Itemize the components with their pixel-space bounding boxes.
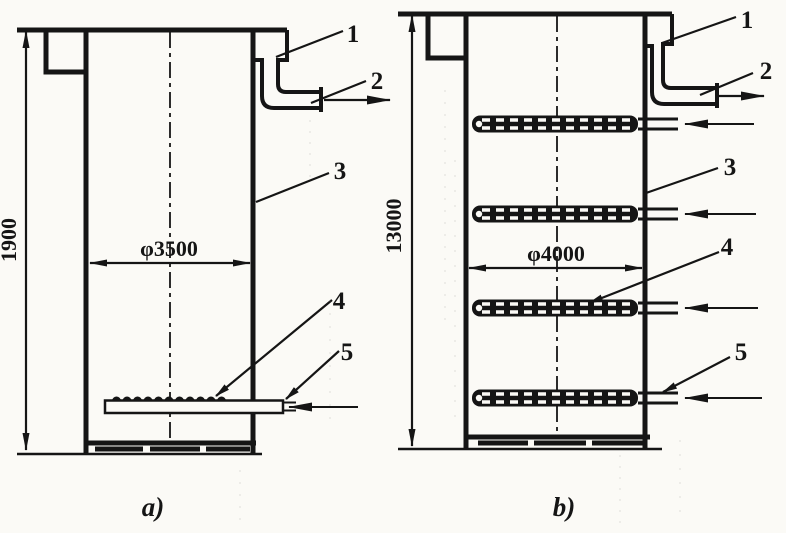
callout-b-3: 3	[724, 154, 737, 181]
sparger-tube-body	[105, 401, 283, 414]
callout-b-4: 4	[721, 234, 734, 261]
leader-2	[700, 73, 753, 95]
two-vessel-diagram: 1900 φ3500 1 2 3 4 5 a)	[0, 0, 786, 533]
callout-a-4: 4	[333, 288, 346, 315]
vessel-b-sparger-2	[472, 206, 756, 223]
vessel-b-sparger-3	[472, 300, 758, 317]
sparger-bar	[472, 300, 638, 317]
sparger-end-cap	[476, 121, 482, 127]
vessel-a: 1900 φ3500 1 2 3 4 5 a)	[0, 21, 390, 522]
callout-b-5: 5	[735, 339, 748, 366]
vessel-b-shell-outline	[398, 14, 672, 448]
diameter-dim-label-a: φ3500	[140, 236, 198, 261]
caption-b: b)	[553, 492, 576, 522]
sparger-end-cap	[476, 305, 482, 311]
leader-4	[216, 300, 332, 396]
height-dim-label-a: 1900	[0, 218, 21, 262]
vessel-b-sparger-1	[472, 116, 754, 133]
sparger-bar	[472, 206, 638, 223]
callout-a-2: 2	[371, 68, 384, 95]
caption-a: a)	[142, 492, 165, 522]
vessel-a-diameter-dimension: φ3500	[90, 236, 250, 263]
sparger-bar	[472, 116, 638, 133]
callout-a-1: 1	[347, 21, 360, 48]
leader-5	[663, 357, 730, 392]
height-dim-label-b: 13000	[381, 199, 406, 254]
callout-b-2: 2	[760, 58, 773, 85]
sparger-end-cap	[476, 395, 482, 401]
leader-5	[286, 351, 339, 399]
leader-3	[256, 173, 329, 202]
leader-3	[646, 168, 718, 193]
figure-page: 1900 φ3500 1 2 3 4 5 a)	[0, 0, 786, 533]
vessel-b-leaders	[589, 17, 753, 392]
sparger-bar	[472, 390, 638, 407]
vessel-a-sparger	[105, 397, 358, 414]
diameter-dim-label-b: φ4000	[527, 241, 585, 266]
sparger-end-cap	[476, 211, 482, 217]
callout-a-3: 3	[334, 158, 347, 185]
callout-a-5: 5	[341, 339, 354, 366]
vessel-b-diameter-dimension: φ4000	[469, 241, 642, 268]
vessel-b-height-dimension: 13000	[381, 15, 412, 446]
vessel-b: 13000 φ4000 1 2 3 4 5 b)	[381, 7, 772, 522]
vessel-a-height-dimension: 1900	[0, 31, 26, 450]
leader-4	[589, 252, 719, 303]
vessel-b-sparger-4	[472, 390, 762, 407]
callout-b-1: 1	[741, 7, 754, 34]
